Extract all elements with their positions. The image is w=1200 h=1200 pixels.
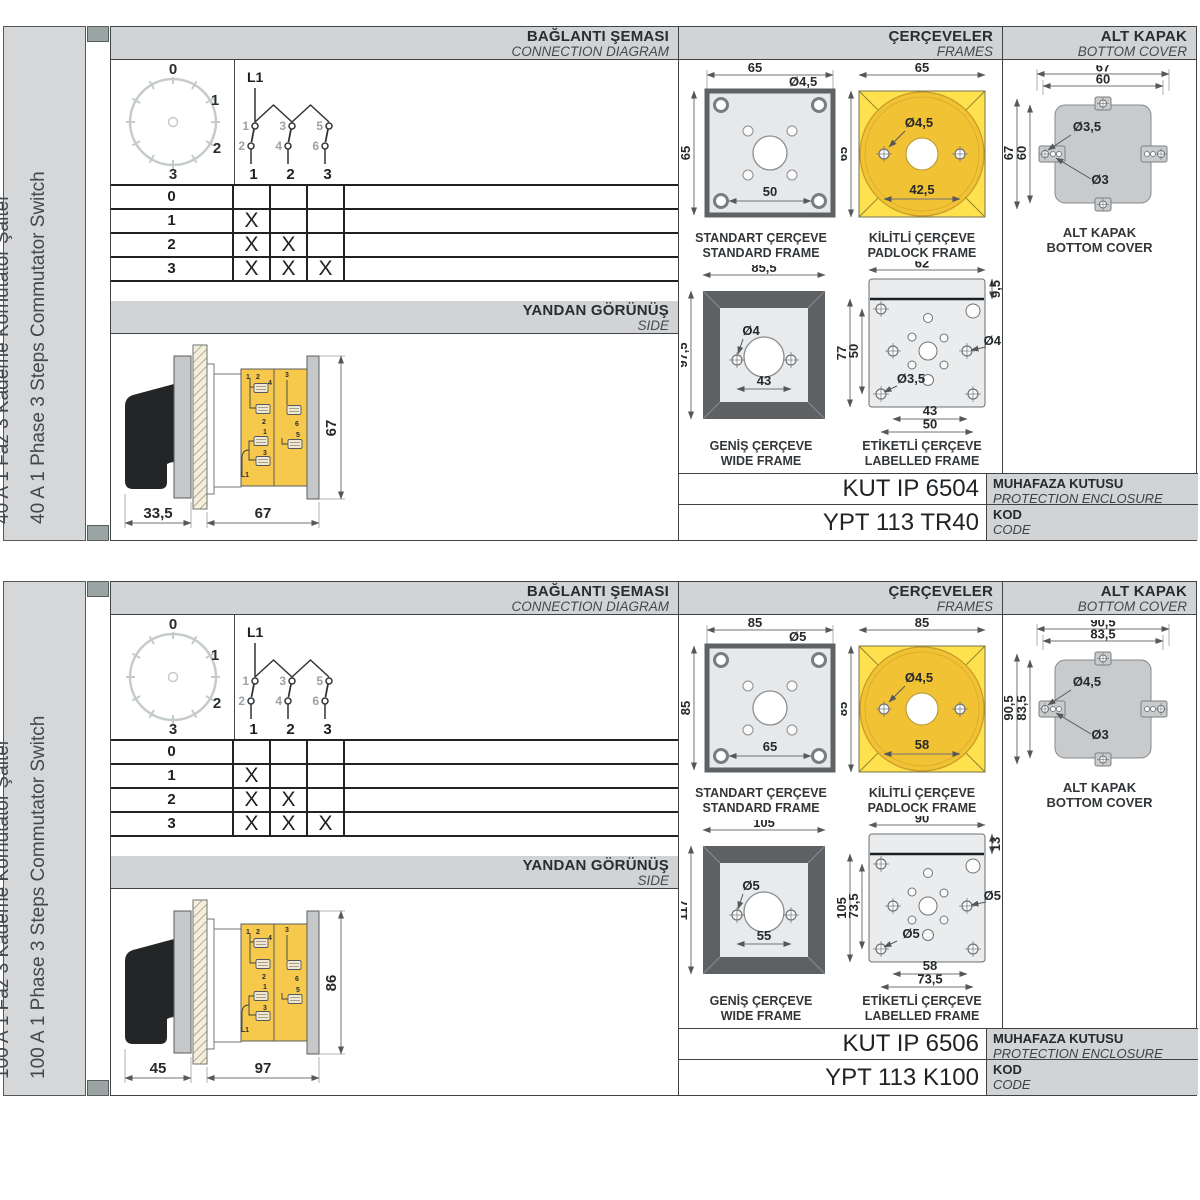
header-title-english: CONNECTION DIAGRAM <box>111 600 669 614</box>
caption-turkish: STANDART ÇERÇEVE <box>679 231 843 246</box>
standard-frame-drawing: 85 Ø5 85 65 <box>681 618 843 784</box>
caption-turkish: KİLİTLİ ÇERÇEVE <box>841 786 1003 801</box>
contact-mark: X <box>234 234 271 256</box>
product-title-turkish: 100 A 1 Faz 3 Kademe Komütatör Şalter <box>0 739 14 1079</box>
caption-turkish: KİLİTLİ ÇERÇEVE <box>841 231 1003 246</box>
hole-diameter-label: Ø4,5 <box>905 670 933 685</box>
dial-position-1: 1 <box>211 92 219 109</box>
contact-mark: X <box>234 258 271 280</box>
contact-mark: X <box>234 765 271 787</box>
dim-hole-pitch: 42,5 <box>909 182 934 197</box>
padlock-frame-drawing: 65 65 Ø4,5 42,5 <box>841 63 1003 229</box>
dial-position-2: 2 <box>213 695 221 712</box>
connection-diagram-section: BAĞLANTI ŞEMASI CONNECTION DIAGRAM <box>111 582 679 1095</box>
terminal-tag: 3 <box>263 1005 267 1012</box>
dim-width: 90 <box>915 816 929 826</box>
code-label: KOD CODE <box>986 1060 1198 1095</box>
dim-width: 85 <box>915 618 929 630</box>
terminal-tag: 1 <box>246 374 250 381</box>
caption-turkish: GENİŞ ÇERÇEVE <box>679 994 843 1009</box>
terminal-5: 5 <box>316 674 323 688</box>
circuit-cell: L1 1 3 <box>235 60 678 184</box>
column-2: 2 <box>286 166 294 183</box>
contact-mark <box>271 741 308 763</box>
terminal-tag: 1 <box>246 929 250 936</box>
hole-diameter-label: Ø5 <box>742 878 759 893</box>
table-row: 0 <box>111 184 678 208</box>
hole-diameter-bottom: Ø3,5 <box>897 371 925 386</box>
position-label: 0 <box>111 741 234 763</box>
switch-handle <box>125 939 174 1044</box>
frames-header: ÇERÇEVELER FRAMES <box>679 27 1002 60</box>
shaft-hole <box>753 136 787 170</box>
dial-axis <box>169 673 178 682</box>
side-view-area: 1 2 4 3 2 6 1 5 3 L1 <box>111 889 678 1095</box>
shaft-hole <box>744 892 784 932</box>
enclosure-label: MUHAFAZA KUTUSU PROTECTION ENCLOSURE <box>986 474 1198 504</box>
header-title-english: FRAMES <box>679 45 993 59</box>
shaft-hole <box>906 693 938 725</box>
position-label: 2 <box>111 789 234 811</box>
hole-diameter-label: Ø5 <box>789 629 806 644</box>
hole-diameter-right: Ø4 <box>984 333 1002 348</box>
tab-hole-small <box>1151 152 1156 157</box>
contact-mark <box>271 210 308 232</box>
header-title-english: CONNECTION DIAGRAM <box>111 45 669 59</box>
terminal-tag: 2 <box>262 419 266 426</box>
contact-mark: X <box>271 813 308 835</box>
terminal-5: 5 <box>316 119 323 133</box>
terminal-tag: L1 <box>241 1027 249 1034</box>
labelled-frame-drawing: 90 13 105 73,5 <box>837 816 1003 992</box>
labelled-frame-caption: ETİKETLİ ÇERÇEVE LABELLED FRAME <box>841 439 1003 468</box>
wide-frame-caption: GENİŞ ÇERÇEVE WIDE FRAME <box>679 994 843 1023</box>
caption-english: STANDARD FRAME <box>679 801 843 816</box>
bottom-cover-drawing: 90,5 83,5 90,5 83,5 <box>1003 620 1196 778</box>
caption-turkish: STANDART ÇERÇEVE <box>679 786 843 801</box>
caption-turkish: ALT KAPAK <box>1003 780 1196 795</box>
contact-mark <box>308 234 345 256</box>
header-title-english: BOTTOM COVER <box>1003 45 1187 59</box>
caption-english: LABELLED FRAME <box>841 1009 1003 1024</box>
feed-label: L1 <box>247 69 264 85</box>
datasheet-content: BAĞLANTI ŞEMASI CONNECTION DIAGRAM <box>110 581 1197 1096</box>
header-title-turkish: ÇERÇEVELER <box>679 29 993 45</box>
padlock-frame-caption: KİLİTLİ ÇERÇEVE PADLOCK FRAME <box>841 231 1003 260</box>
contact-mark: X <box>308 813 345 835</box>
terminal-tag: 4 <box>268 935 272 942</box>
position-label: 3 <box>111 813 234 835</box>
table-filler <box>345 186 678 208</box>
contact-mark: X <box>234 210 271 232</box>
table-filler <box>345 813 678 835</box>
dim-height: 65 <box>681 146 693 160</box>
standard-frame-caption: STANDART ÇERÇEVE STANDARD FRAME <box>679 231 843 260</box>
terminal-tag: 3 <box>285 372 289 379</box>
product-panel: 100 A 1 Faz 3 Kademe Komütatör Şalter 10… <box>0 581 1200 1096</box>
tab-hole-small <box>1057 707 1062 712</box>
caption-english: WIDE FRAME <box>679 1009 843 1024</box>
standard-frame-caption: STANDART ÇERÇEVE STANDARD FRAME <box>679 786 843 815</box>
hole-diameter-label: Ø4,5 <box>905 115 933 130</box>
terminal-tag: 1 <box>263 429 267 436</box>
order-code-value: YPT 113 K100 <box>679 1060 986 1095</box>
label-turkish: KOD <box>993 507 1198 522</box>
connection-diagram-header: BAĞLANTI ŞEMASI CONNECTION DIAGRAM <box>111 27 678 60</box>
terminal-2: 2 <box>238 139 245 153</box>
code-label: KOD CODE <box>986 505 1198 540</box>
small-hole <box>924 869 933 878</box>
header-title-english: FRAMES <box>679 600 993 614</box>
rear-cap <box>307 911 319 1054</box>
dial-axis <box>169 118 178 127</box>
dim-width: 85,5 <box>751 265 776 275</box>
hole-diameter-small: Ø3 <box>1091 172 1108 187</box>
dial-position-0: 0 <box>169 61 177 78</box>
bottom-cover-header: ALT KAPAK BOTTOM COVER <box>1003 27 1196 60</box>
caption-turkish: ETİKETLİ ÇERÇEVE <box>841 994 1003 1009</box>
label-turkish: MUHAFAZA KUTUSU <box>993 1031 1198 1046</box>
protection-enclosure-row: KUT IP 6504 MUHAFAZA KUTUSU PROTECTION E… <box>679 473 1198 504</box>
table-filler <box>345 258 678 280</box>
position-label: 3 <box>111 258 234 280</box>
contact-mark: X <box>271 789 308 811</box>
hole-diameter-big: Ø3,5 <box>1073 119 1101 134</box>
label-english: CODE <box>993 1077 1198 1092</box>
padlock-frame-caption: KİLİTLİ ÇERÇEVE PADLOCK FRAME <box>841 786 1003 815</box>
catalog-page: 40 A 1 Faz 3 Kademe Komütatör Şalter 40 … <box>0 0 1200 1200</box>
dim-inner-height: 83,5 <box>1014 695 1029 720</box>
mounting-panel-hatch <box>193 345 207 509</box>
header-title-turkish: BAĞLANTI ŞEMASI <box>111 29 669 45</box>
side-view-drawing: 1 2 4 3 2 6 1 5 3 L1 <box>111 334 679 540</box>
header-title-english: SIDE <box>111 874 669 888</box>
contact-mark <box>308 186 345 208</box>
binder-strip <box>87 581 109 1096</box>
labelled-frame-caption: ETİKETLİ ÇERÇEVE LABELLED FRAME <box>841 994 1003 1023</box>
product-panel: 40 A 1 Faz 3 Kademe Komütatör Şalter 40 … <box>0 26 1200 541</box>
terminal-tag: 4 <box>268 380 272 387</box>
binder-strip <box>87 26 109 541</box>
collar <box>207 919 214 1049</box>
contact-mark <box>308 789 345 811</box>
header-title-turkish: ALT KAPAK <box>1003 29 1187 45</box>
dim-body-depth: 67 <box>255 505 272 522</box>
dial-position-3: 3 <box>169 166 177 183</box>
table-filler <box>345 210 678 232</box>
shaft-hole <box>919 897 937 915</box>
dim-inner-width: 83,5 <box>1090 627 1115 642</box>
shaft-hole <box>919 342 937 360</box>
small-hole <box>924 314 933 323</box>
product-title-sidebar: 40 A 1 Faz 3 Kademe Komütatör Şalter 40 … <box>3 26 86 541</box>
circuit-diagram: L1 1 3 <box>235 615 679 739</box>
dial-position-1: 1 <box>211 647 219 664</box>
dial-position-0: 0 <box>169 616 177 633</box>
dim-pitch-2: 50 <box>923 417 937 432</box>
terminal-tag: 6 <box>295 976 299 983</box>
cover-body <box>1055 660 1151 758</box>
column-1: 1 <box>249 721 257 738</box>
circuit-cell: L1 1 3 <box>235 615 678 739</box>
bottom-cover-section: ALT KAPAK BOTTOM COVER 67 60 67 60 <box>1003 27 1196 473</box>
datasheet-content: BAĞLANTI ŞEMASI CONNECTION DIAGRAM <box>110 26 1197 541</box>
side-view-area: 1 2 4 3 2 6 1 5 3 L1 <box>111 334 678 540</box>
position-label: 1 <box>111 210 234 232</box>
table-filler <box>345 741 678 763</box>
rotary-dial-diagram: 0 1 2 3 <box>111 60 234 184</box>
contact-mark <box>308 741 345 763</box>
bottom-cover-caption: ALT KAPAK BOTTOM COVER <box>1003 225 1196 255</box>
shaft-hole <box>906 138 938 170</box>
caption-english: BOTTOM COVER <box>1003 240 1196 255</box>
hole-diameter-bottom: Ø5 <box>902 926 919 941</box>
binder-clip-bottom <box>87 525 109 541</box>
feed-label: L1 <box>247 624 264 640</box>
hole-diameter-big: Ø4,5 <box>1073 674 1101 689</box>
frames-section: ÇERÇEVELER FRAMES 85 Ø5 85 <box>679 582 1003 1028</box>
table-row: 3 X X X <box>111 811 678 837</box>
dim-body-depth: 97 <box>255 1060 272 1077</box>
dim-width: 65 <box>748 63 762 75</box>
dim-strip: 13 <box>988 837 1003 851</box>
tab-hole-small <box>1145 707 1150 712</box>
hole-diameter-small: Ø3 <box>1091 727 1108 742</box>
labelled-frame-drawing: 62 9,5 77 50 <box>837 261 1003 437</box>
column-2: 2 <box>286 721 294 738</box>
dim-hole-pitch: 50 <box>763 184 777 199</box>
switch-handle <box>125 384 174 489</box>
hole-diameter-label: Ø4 <box>742 323 760 338</box>
front-plate <box>174 356 191 498</box>
header-title-turkish: ÇERÇEVELER <box>679 584 993 600</box>
dim-hole-pitch: 55 <box>757 928 771 943</box>
wide-frame-drawing: 105 117 Ø5 55 <box>681 820 843 992</box>
tab-hole-small <box>1057 152 1062 157</box>
dim-height: 85 <box>681 701 693 715</box>
dim-height: 85 <box>841 702 850 716</box>
table-row: 0 <box>111 739 678 763</box>
terminal-4: 4 <box>275 139 282 153</box>
corner-hole <box>966 859 980 873</box>
switching-table: 0 1 X 2 X X <box>111 739 678 837</box>
terminal-1: 1 <box>242 674 249 688</box>
label-english: CODE <box>993 522 1198 537</box>
dim-strip: 9,5 <box>988 280 1003 298</box>
shaft-hole <box>744 337 784 377</box>
terminal-tag: 2 <box>256 929 260 936</box>
header-title-turkish: YANDAN GÖRÜNÜŞ <box>111 303 669 319</box>
corner-hole <box>966 304 980 318</box>
column-3: 3 <box>323 166 331 183</box>
dim-width: 65 <box>915 63 929 75</box>
caption-english: BOTTOM COVER <box>1003 795 1196 810</box>
enclosure-code-value: KUT IP 6506 <box>679 1029 986 1059</box>
mounting-panel-hatch <box>193 900 207 1064</box>
position-label: 2 <box>111 234 234 256</box>
contact-mark <box>234 741 271 763</box>
connection-diagram-header: BAĞLANTI ŞEMASI CONNECTION DIAGRAM <box>111 582 678 615</box>
contact-mark <box>308 210 345 232</box>
terminal-tag: L1 <box>241 472 249 479</box>
dim-height: 117 <box>681 900 690 921</box>
contact-mark <box>271 765 308 787</box>
enclosure-label: MUHAFAZA KUTUSU PROTECTION ENCLOSURE <box>986 1029 1198 1059</box>
caption-english: WIDE FRAME <box>679 454 843 469</box>
switching-table: 0 1 X 2 X X <box>111 184 678 282</box>
shaft-hole <box>753 691 787 725</box>
dim-width: 62 <box>915 261 929 271</box>
terminal-4: 4 <box>275 694 282 708</box>
table-row: 1 X <box>111 208 678 232</box>
frames-header: ÇERÇEVELER FRAMES <box>679 582 1002 615</box>
bottom-cover-section: ALT KAPAK BOTTOM COVER 90,5 83,5 90,5 83… <box>1003 582 1196 1028</box>
table-filler <box>345 789 678 811</box>
caption-turkish: GENİŞ ÇERÇEVE <box>679 439 843 454</box>
side-view-header: YANDAN GÖRÜNÜŞ SIDE <box>111 301 678 334</box>
contact-mark <box>271 186 308 208</box>
contact-mark <box>308 765 345 787</box>
caption-english: STANDARD FRAME <box>679 246 843 261</box>
dim-height: 97,5 <box>681 342 690 367</box>
dial-cell: 0 1 2 3 <box>111 615 235 739</box>
padlock-frame-drawing: 85 85 Ø4,5 58 <box>841 618 1003 784</box>
dim-handle-depth: 45 <box>150 1060 167 1077</box>
terminal-tag: 2 <box>262 974 266 981</box>
caption-english: PADLOCK FRAME <box>841 246 1003 261</box>
table-filler <box>345 234 678 256</box>
label-turkish: KOD <box>993 1062 1198 1077</box>
dim-inner-height: 73,5 <box>846 893 861 918</box>
binder-clip-top <box>87 581 109 597</box>
enclosure-code-value: KUT IP 6504 <box>679 474 986 504</box>
position-label: 0 <box>111 186 234 208</box>
dial-position-2: 2 <box>213 140 221 157</box>
front-plate <box>174 911 191 1053</box>
header-title-english: BOTTOM COVER <box>1003 600 1187 614</box>
order-code-value: YPT 113 TR40 <box>679 505 986 540</box>
tab-hole-small <box>1151 707 1156 712</box>
product-title-english: 100 A 1 Phase 3 Steps Commutator Switch <box>28 716 50 1079</box>
terminal-1: 1 <box>242 119 249 133</box>
column-3: 3 <box>323 721 331 738</box>
table-row: 2 X X <box>111 232 678 256</box>
tab-hole-small <box>1051 707 1056 712</box>
contact-mark <box>234 186 271 208</box>
contact-mark: X <box>234 813 271 835</box>
connection-diagram-section: BAĞLANTI ŞEMASI CONNECTION DIAGRAM <box>111 27 679 540</box>
terminal-tag: 1 <box>263 984 267 991</box>
product-title-turkish: 40 A 1 Faz 3 Kademe Komütatör Şalter <box>0 194 14 524</box>
order-code-row: YPT 113 K100 KOD CODE <box>679 1059 1198 1095</box>
label-turkish: MUHAFAZA KUTUSU <box>993 476 1198 491</box>
collar <box>207 364 214 494</box>
header-title-turkish: YANDAN GÖRÜNÜŞ <box>111 858 669 874</box>
dim-inner-width: 60 <box>1096 72 1110 87</box>
column-1: 1 <box>249 166 257 183</box>
frames-section: ÇERÇEVELER FRAMES 65 Ø4,5 65 <box>679 27 1003 473</box>
tab-hole-small <box>1145 152 1150 157</box>
terminal-6: 6 <box>312 139 319 153</box>
table-row: 3 X X X <box>111 256 678 282</box>
dial-cell: 0 1 2 3 <box>111 60 235 184</box>
protection-enclosure-row: KUT IP 6506 MUHAFAZA KUTUSU PROTECTION E… <box>679 1028 1198 1059</box>
header-title-turkish: BAĞLANTI ŞEMASI <box>111 584 669 600</box>
terminal-3: 3 <box>279 674 286 688</box>
contact-mark: X <box>271 258 308 280</box>
caption-english: PADLOCK FRAME <box>841 801 1003 816</box>
terminal-3: 3 <box>279 119 286 133</box>
dim-body-height: 67 <box>323 420 340 437</box>
dim-hole-pitch: 65 <box>763 739 777 754</box>
terminal-tag: 3 <box>263 450 267 457</box>
tab-hole-small <box>1051 152 1056 157</box>
bottom-cover-drawing: 67 60 67 60 Ø3,5 <box>1003 65 1196 223</box>
bottom-cover-header: ALT KAPAK BOTTOM COVER <box>1003 582 1196 615</box>
order-code-row: YPT 113 TR40 KOD CODE <box>679 504 1198 540</box>
circuit-diagram: L1 1 3 <box>235 60 679 184</box>
caption-turkish: ETİKETLİ ÇERÇEVE <box>841 439 1003 454</box>
dim-width: 85 <box>748 618 762 630</box>
standard-frame-drawing: 65 Ø4,5 65 50 <box>681 63 843 229</box>
cover-body <box>1055 105 1151 203</box>
body-front <box>214 374 241 487</box>
table-row: 2 X X <box>111 787 678 811</box>
product-title-english: 40 A 1 Phase 3 Steps Commutator Switch <box>28 171 50 524</box>
dim-pitch-2: 73,5 <box>917 972 942 987</box>
dim-body-height: 86 <box>323 975 340 992</box>
hole-diameter-right: Ø5 <box>984 888 1001 903</box>
diagram-row: 0 1 2 3 L1 <box>111 60 678 184</box>
caption-english: LABELLED FRAME <box>841 454 1003 469</box>
terminal-tag: 3 <box>285 927 289 934</box>
table-row: 1 X <box>111 763 678 787</box>
diagram-row: 0 1 2 3 L1 <box>111 615 678 739</box>
rear-cap <box>307 356 319 499</box>
terminal-tag: 5 <box>296 987 300 994</box>
table-filler <box>345 765 678 787</box>
terminal-tag: 2 <box>256 374 260 381</box>
position-label: 1 <box>111 765 234 787</box>
dim-height: 65 <box>841 147 850 161</box>
hole-diameter-label: Ø4,5 <box>789 74 817 89</box>
header-title-turkish: ALT KAPAK <box>1003 584 1187 600</box>
binder-clip-top <box>87 26 109 42</box>
contact-mark: X <box>308 258 345 280</box>
side-view-header: YANDAN GÖRÜNÜŞ SIDE <box>111 856 678 889</box>
body-front <box>214 929 241 1042</box>
wide-frame-caption: GENİŞ ÇERÇEVE WIDE FRAME <box>679 439 843 468</box>
contact-mark: X <box>234 789 271 811</box>
terminal-tag: 6 <box>295 421 299 428</box>
dim-inner-height: 60 <box>1014 146 1029 160</box>
side-view-drawing: 1 2 4 3 2 6 1 5 3 L1 <box>111 889 679 1095</box>
dial-position-3: 3 <box>169 721 177 738</box>
terminal-2: 2 <box>238 694 245 708</box>
dim-handle-depth: 33,5 <box>143 505 172 522</box>
contact-mark: X <box>271 234 308 256</box>
dim-width: 105 <box>753 820 775 830</box>
dim-inner-height: 50 <box>846 344 861 358</box>
terminal-tag: 5 <box>296 432 300 439</box>
header-title-english: SIDE <box>111 319 669 333</box>
terminal-6: 6 <box>312 694 319 708</box>
rotary-dial-diagram: 0 1 2 3 <box>111 615 234 739</box>
bottom-cover-caption: ALT KAPAK BOTTOM COVER <box>1003 780 1196 810</box>
caption-turkish: ALT KAPAK <box>1003 225 1196 240</box>
dim-hole-pitch: 58 <box>915 737 929 752</box>
wide-frame-drawing: 85,5 97,5 Ø4 43 <box>681 265 843 437</box>
